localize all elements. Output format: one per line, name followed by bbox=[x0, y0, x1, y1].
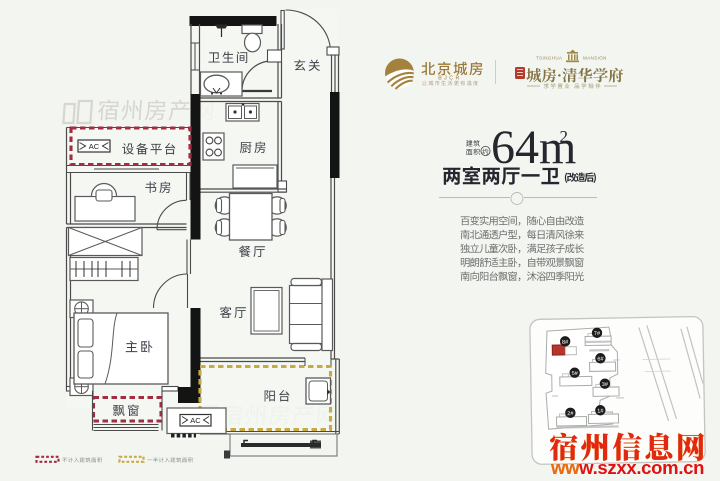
svg-text:5#: 5# bbox=[572, 371, 579, 377]
svg-text:MANSION: MANSION bbox=[583, 56, 607, 61]
svg-text:ww: ww bbox=[550, 457, 580, 478]
svg-text:BJCR: BJCR bbox=[438, 76, 462, 82]
svg-text:3#: 3# bbox=[602, 382, 609, 388]
svg-text:7#: 7# bbox=[594, 331, 601, 337]
svg-text:1#: 1# bbox=[597, 408, 604, 414]
svg-text:AC: AC bbox=[89, 142, 100, 151]
svg-text:8#: 8# bbox=[562, 340, 569, 346]
svg-text:AC: AC bbox=[190, 416, 201, 425]
svg-text:2: 2 bbox=[560, 127, 569, 146]
svg-text:TSINGHUA: TSINGHUA bbox=[536, 56, 562, 61]
svg-text:2#: 2# bbox=[567, 411, 574, 417]
svg-text:6#: 6# bbox=[597, 356, 604, 362]
